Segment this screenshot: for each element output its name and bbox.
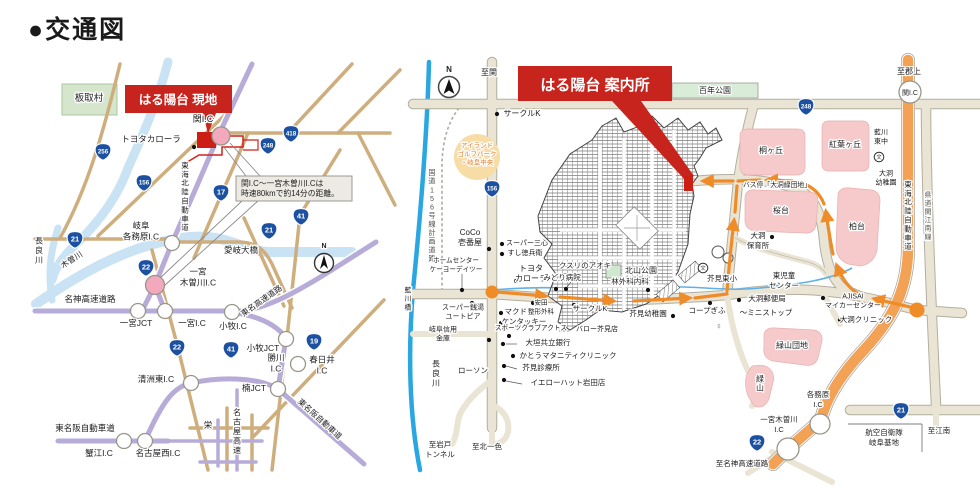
interchange-node xyxy=(212,127,230,145)
map-label: 大垣共立銀行 xyxy=(526,337,571,347)
svg-text:41: 41 xyxy=(297,211,305,220)
map-label: 芥見幼稚園 xyxy=(629,308,667,318)
route-shield: 19 xyxy=(306,334,322,351)
map-label: バロー芥見店 xyxy=(576,324,618,333)
map-label: 長良川 xyxy=(35,237,43,265)
school-icon: 文 xyxy=(698,263,708,273)
map-label: 至郡上 xyxy=(897,66,921,76)
left-site-banner-text: はる陽台 現地 xyxy=(139,92,218,107)
route-shield: 41 xyxy=(223,342,239,359)
map-label: 関I.C xyxy=(193,114,214,124)
poi-dot xyxy=(487,247,491,251)
route-shield: 22 xyxy=(138,260,154,277)
interchange-node xyxy=(165,236,180,251)
svg-text:156: 156 xyxy=(487,185,498,192)
map-label: 小牧I.C xyxy=(219,321,247,331)
left-map-pois xyxy=(192,145,196,149)
map-label: ホームセンターケーヨーデイツー xyxy=(430,256,483,274)
map-label: 至岩戸トンネル xyxy=(425,439,455,459)
interchange-node xyxy=(271,382,286,397)
school-icon: 文 xyxy=(874,152,884,162)
svg-text:256: 256 xyxy=(98,148,109,155)
route-shield: 21 xyxy=(893,403,909,420)
map-label: 関I.C xyxy=(902,89,918,97)
svg-text:248: 248 xyxy=(263,142,274,149)
map-label: バス停「大洞緑団地」 xyxy=(743,180,811,189)
poi-dot xyxy=(500,242,504,246)
map-label: 柏台 xyxy=(849,221,865,231)
map-label: 名神高速道路 xyxy=(64,294,116,304)
route-shield: 248 xyxy=(260,138,276,155)
map-label: 航空自衛隊岐阜基地 xyxy=(865,427,903,447)
svg-text:22: 22 xyxy=(142,262,150,271)
interchange-node xyxy=(810,414,830,434)
route-shield: 22 xyxy=(749,435,765,452)
poi-dot xyxy=(501,342,505,346)
map-label: 至名神高速道路 xyxy=(716,458,769,468)
interchange-node xyxy=(131,304,146,319)
map-label: 紅葉ヶ丘 xyxy=(829,139,861,149)
map-label: 名古屋西I.C xyxy=(136,448,181,458)
map-label: 桜台 xyxy=(773,205,789,215)
map-label: 百年公園 xyxy=(699,85,731,95)
map-label: みどり病院 xyxy=(543,272,581,282)
interchange-node xyxy=(158,304,173,319)
poi-dot xyxy=(821,296,825,300)
poi-dot xyxy=(487,338,491,342)
svg-text:22: 22 xyxy=(173,342,181,351)
map-label: 芥見診療所 xyxy=(522,362,560,372)
interchange-node xyxy=(291,357,306,372)
site-square-right xyxy=(684,176,693,191)
map-label: 藍川東中 xyxy=(874,127,888,145)
map-label: 東児童センター xyxy=(769,270,799,290)
poi-dot xyxy=(502,378,506,382)
compass-right xyxy=(439,77,460,98)
interchange-node xyxy=(138,434,153,449)
right-site-banner-text: はる陽台 案内所 xyxy=(540,76,649,94)
route-node xyxy=(486,286,499,299)
route-shield: 256 xyxy=(95,144,111,161)
map-label: 至関 xyxy=(481,68,497,77)
map-label: 板取村 xyxy=(75,92,104,104)
nagara-river xyxy=(410,62,429,470)
map-label: 愛岐大橋 xyxy=(224,245,259,255)
left-urban-expressway-grid xyxy=(168,390,262,470)
map-label: N xyxy=(446,65,452,74)
svg-text:21: 21 xyxy=(265,225,273,234)
map-label: 緑山団地 xyxy=(776,340,808,350)
poi-dot xyxy=(737,298,741,302)
route-shield: 22 xyxy=(169,340,185,357)
svg-text:418: 418 xyxy=(286,130,297,137)
map-label: CoCo壱番屋 xyxy=(458,228,482,247)
left-overview-map: 関I.C〜一宮木曽川I.Cは 時速80kmで約14分の距離。 はる陽台 現地 2… xyxy=(35,62,400,470)
poi-dot xyxy=(708,301,712,305)
route-shield: 17 xyxy=(213,185,229,202)
map-label: 至北一色 xyxy=(472,441,502,451)
map-label: 清洲東I.C xyxy=(138,374,174,384)
traffic-map-page: ●交通図 xyxy=(0,0,980,500)
map-label: 栄 xyxy=(204,420,213,430)
map-label: 大洞クリニック xyxy=(840,314,893,324)
svg-text:21: 21 xyxy=(71,234,79,243)
map-label: 楠JCT xyxy=(242,383,266,393)
map-label: N xyxy=(321,243,326,250)
map-label: 〜ミニストップ xyxy=(740,308,793,317)
map-label: 小牧JCT xyxy=(247,343,280,353)
svg-text:41: 41 xyxy=(227,344,235,353)
map-label: 一宮I.C xyxy=(178,318,206,328)
map-label: 桐ヶ丘 xyxy=(759,145,783,155)
map-label: 藍川橋 xyxy=(405,286,412,312)
route-shield: 21 xyxy=(261,223,277,240)
poi-dot xyxy=(564,287,568,291)
map-label: 一宮JCT xyxy=(120,318,153,328)
svg-text:17: 17 xyxy=(217,187,225,196)
poi-dot xyxy=(511,354,515,358)
svg-text:文: 文 xyxy=(700,264,706,272)
poi-dot xyxy=(671,314,675,318)
map-label: 東名阪自動車道 xyxy=(55,423,115,433)
map-label: サークルK xyxy=(503,109,541,118)
route-node xyxy=(910,303,925,318)
poi-dot xyxy=(646,288,650,292)
poi-dot xyxy=(500,252,504,256)
right-roads-casing xyxy=(413,62,980,428)
poi-dot xyxy=(495,112,499,116)
interchange-node xyxy=(117,434,132,449)
compass-left xyxy=(315,254,334,273)
interchange-node xyxy=(225,305,240,320)
map-label: 緑山 xyxy=(756,373,764,392)
map-label: トヨタカローラ xyxy=(121,134,181,144)
map-label: スーパー銭湯ユートピア xyxy=(442,302,484,320)
map-label: 蟹江I.C xyxy=(85,448,113,458)
svg-text:19: 19 xyxy=(310,336,318,345)
poi-dot xyxy=(460,288,464,292)
interchange-node xyxy=(279,332,294,347)
poi-dot xyxy=(554,287,558,291)
map-canvas: 関I.C〜一宮木曽川I.Cは 時速80kmで約14分の距離。 はる陽台 現地 2… xyxy=(0,0,980,500)
map-label: スーパー三心 xyxy=(506,239,548,247)
route-shield: 418 xyxy=(283,126,299,143)
map-label: 一宮木曽川I.C xyxy=(180,267,216,288)
map-label: 名古屋高速 xyxy=(233,407,241,455)
map-label: 一宮木曽川I.C xyxy=(760,414,798,434)
poi-dot xyxy=(192,145,196,149)
map-label: 大洞郵便局 xyxy=(748,293,786,303)
route-shield: 41 xyxy=(293,209,309,226)
route-shield: 156 xyxy=(484,181,500,198)
map-label: トヨタカローラ xyxy=(515,264,547,283)
map-label: 北山公園 xyxy=(625,265,657,275)
map-label: サークルK xyxy=(573,304,608,313)
interchange-node xyxy=(184,376,199,391)
map-label: スポーツクラブアクトス xyxy=(495,323,567,332)
right-roads xyxy=(413,62,980,428)
map-label: 芥見東小 xyxy=(707,273,737,283)
map-label: 岐阜各務原I.C xyxy=(123,221,159,242)
map-label: 長良川 xyxy=(432,360,440,388)
interchange-node xyxy=(777,438,799,460)
map-label: 至江南 xyxy=(928,425,951,435)
svg-text:22: 22 xyxy=(753,437,761,446)
poi-dot xyxy=(502,364,506,368)
map-label: ♀ xyxy=(716,321,723,331)
poi-dot xyxy=(499,311,503,315)
map-label: 東海北陸自動車道 xyxy=(904,179,912,251)
map-label: 国道156号線計画道路 xyxy=(428,168,435,263)
planned-road-dashed xyxy=(442,108,459,293)
tokai-hokuriku-expressway xyxy=(773,60,908,464)
map-label: すし徳兵衛 xyxy=(508,248,543,257)
route-shield: 248 xyxy=(798,99,814,116)
poi-dot xyxy=(770,235,774,239)
map-label: 大洞幼稚園 xyxy=(876,168,897,186)
map-label: イエローハット岩田店 xyxy=(531,377,606,387)
map-label: かとうマタニティクリニック xyxy=(519,351,616,360)
svg-text:248: 248 xyxy=(801,103,812,110)
map-label: ローソン xyxy=(458,366,488,375)
map-label: クスリのアオキ xyxy=(559,261,611,270)
map-label: アイランドゴルフパーク・岐阜中央 xyxy=(458,141,497,166)
map-label: 大洞保育所 xyxy=(747,230,770,250)
right-detail-map: はる陽台 案内所 文文 1562482122 至関至郡上関I.CサークルK百年公… xyxy=(405,60,980,482)
map-label: 東名阪自動車道 xyxy=(296,396,344,441)
map-label: コープぎふ xyxy=(688,305,726,315)
map-label: 林外科内科 xyxy=(611,276,649,286)
interchange-node xyxy=(146,276,165,295)
svg-text:21: 21 xyxy=(897,405,905,414)
travel-time-line1: 関I.C〜一宮木曽川I.Cは xyxy=(241,178,324,188)
travel-time-line2: 時速80kmで約14分の距離。 xyxy=(241,188,339,198)
svg-text:文: 文 xyxy=(876,153,882,161)
map-label: 東海北陸自動車道 xyxy=(181,160,189,232)
poi-dot xyxy=(507,334,511,338)
svg-text:156: 156 xyxy=(139,179,150,186)
